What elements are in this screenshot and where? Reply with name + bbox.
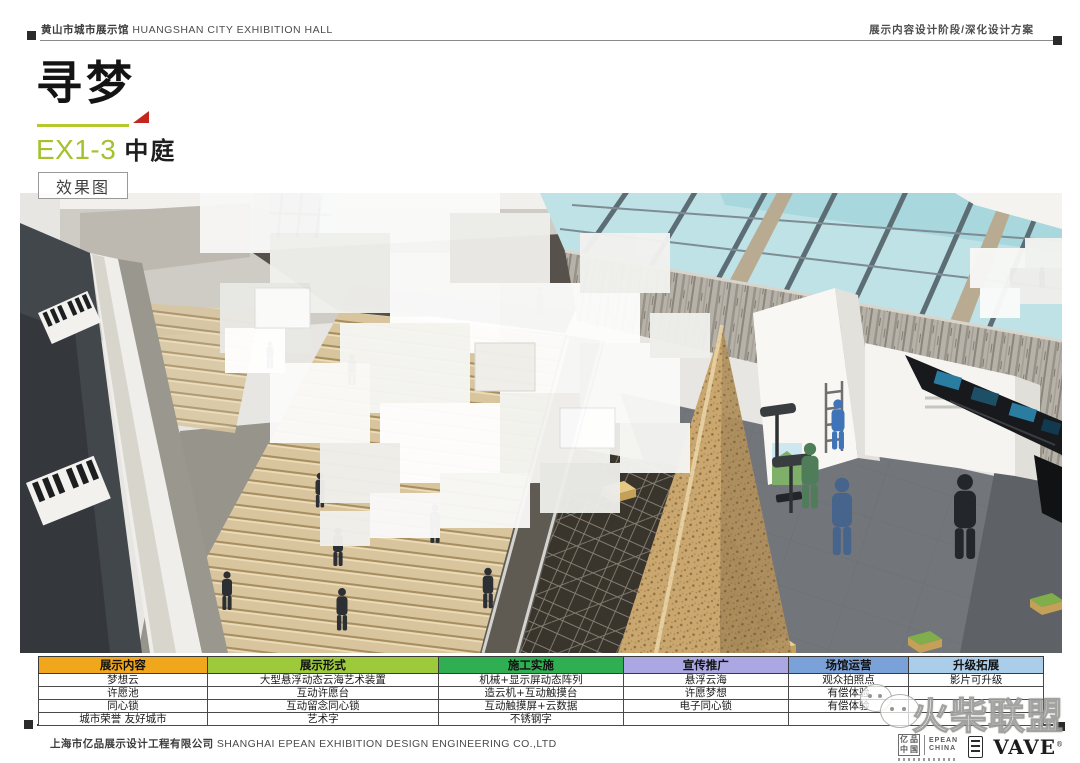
cell: 不锈钢字 <box>438 713 623 726</box>
cell <box>909 713 1044 726</box>
cell: 观众拍照点 <box>788 674 909 687</box>
logo-divider <box>924 735 925 755</box>
epean-char: 亿 <box>899 735 909 745</box>
table-row: 许愿池 互动许愿台 造云机+互动触摸台 许愿梦想 有偿体验 <box>39 687 1044 700</box>
section-area: 中庭 <box>124 131 176 166</box>
cell: 有偿体验 <box>788 700 909 713</box>
cell: 梦想云 <box>39 674 208 687</box>
cell: 悬浮云海 <box>623 674 788 687</box>
epean-en-line2: CHINA <box>929 745 958 753</box>
cell: 有偿体验 <box>788 687 909 700</box>
cell: 互动触摸屏+云数据 <box>438 700 623 713</box>
title-flag-icon <box>133 111 149 123</box>
header-right-title: 展示内容设计阶段/深化设计方案 <box>869 22 1034 37</box>
cell: 城市荣誉 友好城市 <box>39 713 208 726</box>
spec-table: 展示内容 展示形式 施工实施 宣传推广 场馆运营 升级拓展 梦想云 大型悬浮动态… <box>38 656 1044 726</box>
cell <box>788 713 909 726</box>
table-row: 同心锁 互动留念同心锁 互动触摸屏+云数据 电子同心锁 有偿体验 <box>39 700 1044 713</box>
cell: 互动许愿台 <box>207 687 438 700</box>
epean-char: 中 <box>899 745 909 755</box>
col-header-promotion: 宣传推广 <box>623 657 788 674</box>
table-row: 梦想云 大型悬浮动态云海艺术装置 机械+显示屏动态阵列 悬浮云海 观众拍照点 影… <box>39 674 1044 687</box>
cell: 同心锁 <box>39 700 208 713</box>
footer-logos: 亿 品 中 国 EPEAN CHINA VAVE® <box>898 732 1064 762</box>
header-right-square <box>1053 36 1062 45</box>
cell: 电子同心锁 <box>623 700 788 713</box>
slide-page: 黄山市城市展示馆 HUANGSHAN CITY EXHIBITION HALL … <box>0 0 1080 763</box>
render-tag: 效果图 <box>38 172 128 199</box>
cell <box>909 687 1044 700</box>
cell: 许愿池 <box>39 687 208 700</box>
epean-grid-icon: 亿 品 中 国 <box>898 734 920 756</box>
cell <box>623 713 788 726</box>
col-header-content: 展示内容 <box>39 657 208 674</box>
footer-company-en: SHANGHAI EPEAN EXHIBITION DESIGN ENGINEE… <box>217 738 557 750</box>
vave-logo: VAVE® <box>993 735 1064 759</box>
footer-company: 上海市亿品展示设计工程有限公司 SHANGHAI EPEAN EXHIBITIO… <box>50 736 557 751</box>
render-scene <box>20 193 1062 653</box>
col-header-form: 展示形式 <box>207 657 438 674</box>
header-left-title: 黄山市城市展示馆 HUANGSHAN CITY EXHIBITION HALL <box>41 22 333 37</box>
cell: 许愿梦想 <box>623 687 788 700</box>
registered-mark: ® <box>1056 740 1064 748</box>
header-rule <box>40 40 1053 41</box>
title-underline <box>37 124 129 127</box>
epean-logo: 亿 品 中 国 EPEAN CHINA <box>898 734 958 761</box>
header-left-en: HUANGSHAN CITY EXHIBITION HALL <box>132 24 332 36</box>
vave-text: VAVE <box>993 735 1056 759</box>
section-title: EX1-3 中庭 <box>36 131 176 166</box>
section-code: EX1-3 <box>36 134 116 166</box>
cell: 影片可升级 <box>909 674 1044 687</box>
col-header-operation: 场馆运营 <box>788 657 909 674</box>
table-header-row: 展示内容 展示形式 施工实施 宣传推广 场馆运营 升级拓展 <box>39 657 1044 674</box>
epean-char: 国 <box>909 745 919 755</box>
cell: 互动留念同心锁 <box>207 700 438 713</box>
header-left-square <box>27 31 36 40</box>
page-title: 寻梦 <box>36 58 136 109</box>
footer-right-square <box>1056 722 1065 731</box>
cell: 造云机+互动触摸台 <box>438 687 623 700</box>
cell: 机械+显示屏动态阵列 <box>438 674 623 687</box>
table-row: 城市荣誉 友好城市 艺术字 不锈钢字 <box>39 713 1044 726</box>
cell <box>909 700 1044 713</box>
seal-stamp-icon <box>968 736 983 758</box>
cell: 大型悬浮动态云海艺术装置 <box>207 674 438 687</box>
footer-left-square <box>24 720 33 729</box>
atrium-rendering <box>20 193 1062 653</box>
epean-char: 品 <box>909 735 919 745</box>
header-left-zh: 黄山市城市展示馆 <box>41 24 129 36</box>
epean-tagline <box>898 758 958 761</box>
epean-en-line1: EPEAN <box>929 737 958 745</box>
cell: 艺术字 <box>207 713 438 726</box>
footer-company-zh: 上海市亿品展示设计工程有限公司 <box>50 738 214 750</box>
col-header-construction: 施工实施 <box>438 657 623 674</box>
col-header-upgrade: 升级拓展 <box>909 657 1044 674</box>
